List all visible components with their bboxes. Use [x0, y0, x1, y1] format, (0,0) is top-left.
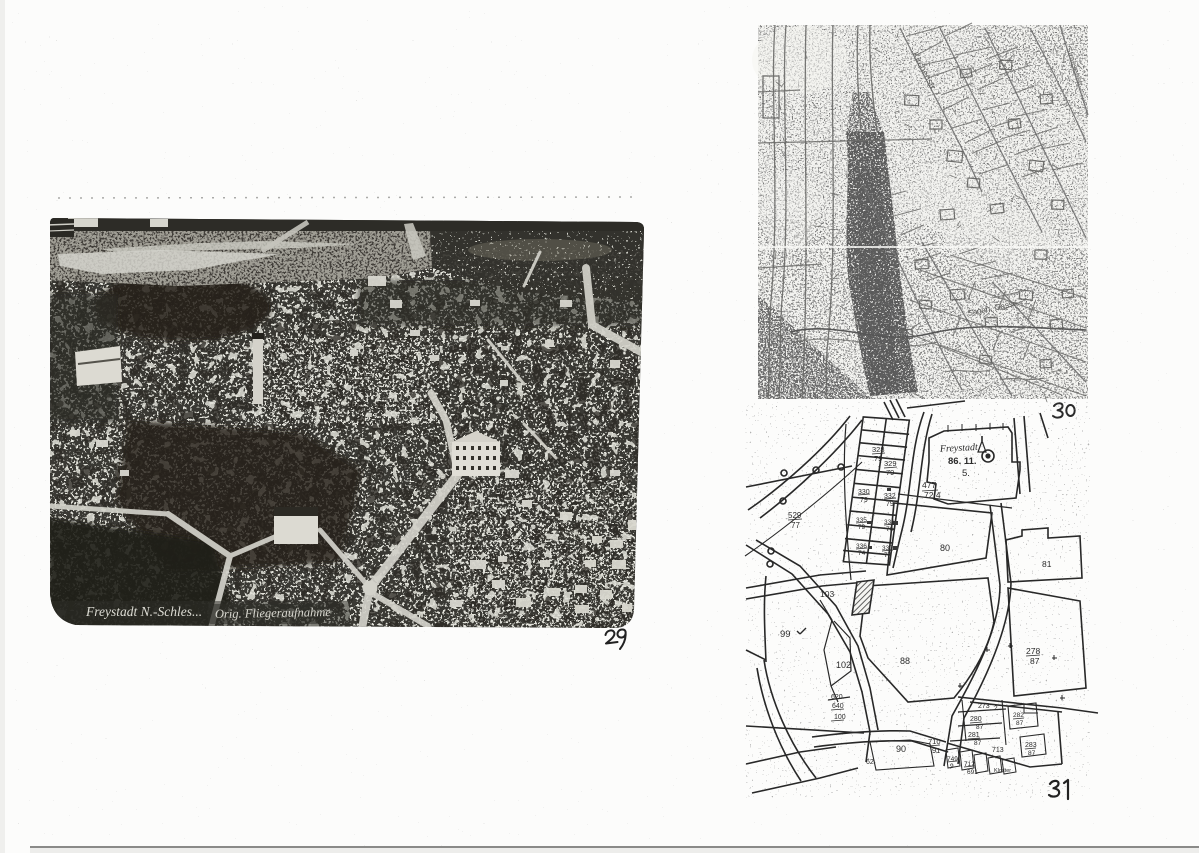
svg-text:5.: 5. [962, 468, 970, 479]
svg-text:86. 11.: 86. 11. [948, 456, 977, 467]
svg-text:74: 74 [858, 550, 866, 557]
svg-text:9: 9 [950, 763, 954, 770]
svg-text:99: 99 [780, 629, 791, 640]
svg-text:80: 80 [940, 543, 950, 553]
svg-text:102: 102 [836, 660, 851, 670]
svg-text:Orig. Fliegeraufnahme: Orig. Fliegeraufnahme [215, 605, 332, 621]
svg-text:90: 90 [896, 744, 906, 754]
svg-text:Freystadt: Freystadt [939, 442, 979, 455]
svg-text:72.4: 72.4 [924, 490, 941, 500]
svg-text:87: 87 [1016, 720, 1024, 727]
svg-text:328: 328 [872, 445, 885, 454]
svg-text:529: 529 [788, 511, 802, 520]
svg-text:87: 87 [976, 724, 984, 731]
svg-text:Kloster: Kloster [994, 768, 1011, 774]
svg-text:76: 76 [886, 526, 894, 533]
svg-text:87: 87 [1030, 656, 1040, 666]
svg-text:87: 87 [974, 740, 982, 747]
svg-text:273: 273 [978, 703, 990, 710]
svg-text:329: 329 [884, 459, 897, 468]
svg-text:79: 79 [886, 468, 894, 477]
svg-text:88: 88 [900, 656, 910, 666]
svg-text:79: 79 [874, 454, 882, 463]
svg-text:77: 77 [791, 521, 800, 530]
svg-text:103: 103 [820, 589, 834, 599]
svg-text:Freystadt N.-Schles...: Freystadt N.-Schles... [85, 604, 202, 619]
svg-text:691: 691 [967, 769, 978, 776]
svg-text:79: 79 [860, 497, 868, 504]
svg-text:77: 77 [884, 552, 892, 559]
svg-text:713: 713 [992, 747, 1004, 754]
svg-text:710: 710 [928, 737, 941, 746]
svg-text:91: 91 [932, 746, 940, 755]
svg-text:62: 62 [866, 759, 874, 766]
svg-text:477: 477 [922, 480, 936, 490]
svg-text:87: 87 [1028, 750, 1036, 757]
svg-text:79: 79 [886, 501, 894, 508]
svg-text:620: 620 [831, 694, 843, 701]
svg-text:81: 81 [1042, 559, 1052, 569]
svg-text:79: 79 [858, 524, 866, 531]
svg-text:2: 2 [994, 705, 998, 712]
svg-text:278: 278 [1026, 646, 1040, 656]
